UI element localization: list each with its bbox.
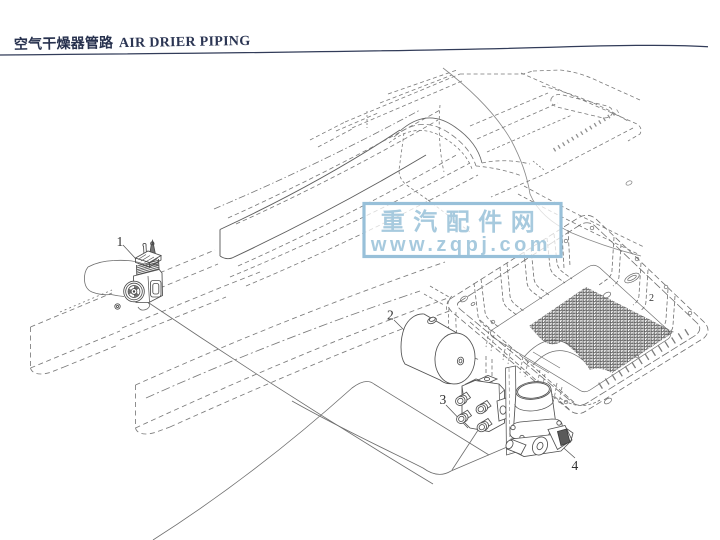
svg-text:2: 2 (387, 308, 394, 323)
svg-text:www.zqpj.com: www.zqpj.com (370, 234, 551, 256)
svg-text:3: 3 (440, 392, 447, 407)
svg-text:空气干燥器管路: 空气干燥器管路 (14, 34, 114, 52)
svg-text:重汽配件网: 重汽配件网 (381, 208, 544, 236)
svg-text:2: 2 (649, 293, 654, 304)
svg-text:4: 4 (572, 458, 579, 473)
svg-text:1: 1 (117, 234, 124, 249)
svg-text:AIR DRIER PIPING: AIR DRIER PIPING (119, 34, 251, 51)
